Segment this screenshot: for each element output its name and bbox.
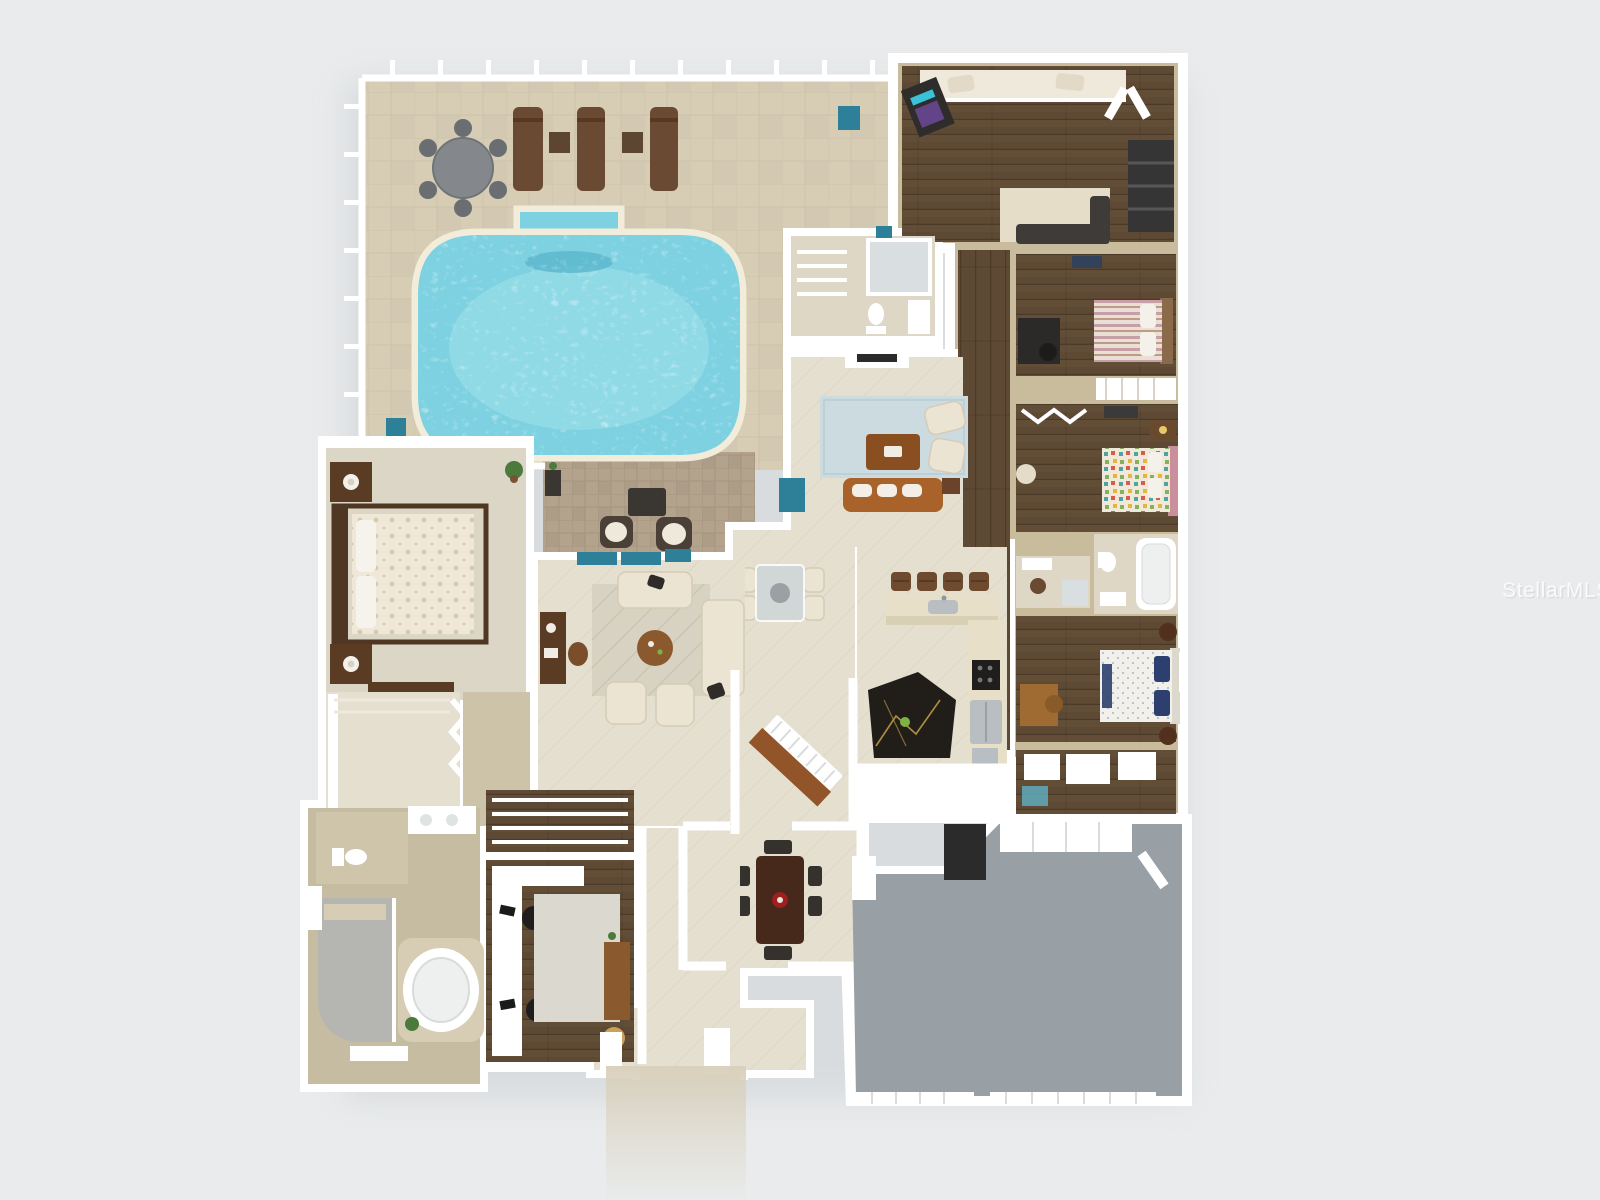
wall-art xyxy=(1072,256,1102,268)
outdoor-table xyxy=(628,488,666,516)
side-table xyxy=(549,132,570,153)
cabinet xyxy=(1024,754,1060,780)
side-table xyxy=(622,132,643,153)
armchair xyxy=(606,682,646,724)
nightstand xyxy=(1159,727,1177,745)
pool xyxy=(418,212,740,455)
nightstand xyxy=(330,462,372,502)
pool-bath-laundry xyxy=(791,226,935,336)
patio-table xyxy=(433,138,493,198)
cabinet xyxy=(604,942,630,1020)
wicker-chair xyxy=(600,516,633,548)
armchair xyxy=(927,437,966,474)
tray xyxy=(884,446,902,457)
wall-art xyxy=(1104,406,1138,418)
glass-door xyxy=(1022,786,1048,806)
water-closet xyxy=(316,812,408,884)
nightstand xyxy=(1159,623,1177,641)
pillow xyxy=(356,520,376,572)
bedroom-4 xyxy=(1016,616,1180,745)
utility-mat xyxy=(944,824,986,880)
window-glass xyxy=(876,226,892,238)
vanity xyxy=(1022,558,1052,570)
bed-quilt xyxy=(1102,446,1178,516)
garage-doors xyxy=(856,1092,1156,1104)
nightstand xyxy=(330,644,372,684)
master-bedroom xyxy=(326,448,526,700)
toilet xyxy=(1030,578,1046,594)
makeup-vanity xyxy=(306,886,322,930)
range xyxy=(972,660,1000,690)
vanity xyxy=(908,300,930,334)
shower xyxy=(868,240,930,294)
soaking-tub xyxy=(398,938,484,1042)
accent-chair xyxy=(1016,464,1036,484)
bed-white xyxy=(1100,648,1180,724)
kitchen xyxy=(857,547,1007,768)
lanai-console xyxy=(545,470,561,496)
sofa-caramel xyxy=(843,478,943,512)
bed-striped xyxy=(1094,298,1173,364)
hall-bath xyxy=(1094,534,1178,614)
vanity xyxy=(1100,592,1126,606)
cabinet xyxy=(1118,752,1156,780)
desk-chair xyxy=(1045,695,1063,713)
sink xyxy=(928,600,958,614)
living-room xyxy=(538,560,745,826)
desk-chair xyxy=(1039,343,1057,361)
floor-plan-render: StellarMLS StellarMLS xyxy=(0,0,1600,1200)
pool-lounge-chairs xyxy=(513,107,678,191)
office xyxy=(486,790,634,1062)
mosaic-accent xyxy=(838,106,860,130)
toilet xyxy=(345,849,367,865)
storage-nook xyxy=(852,856,876,900)
bedroom-3 xyxy=(1016,404,1178,532)
sofa xyxy=(1016,224,1100,244)
shower-bench xyxy=(324,904,386,920)
master-closet xyxy=(326,692,466,822)
watermark: StellarMLS xyxy=(1502,579,1600,602)
shower xyxy=(1062,580,1088,606)
master-bed xyxy=(332,506,486,642)
plant xyxy=(405,1017,419,1031)
family-room xyxy=(791,350,968,547)
fruit-bowl xyxy=(900,717,910,727)
double-vanity xyxy=(408,806,476,834)
dinette-chair xyxy=(804,568,824,592)
side-table xyxy=(942,478,960,494)
front-walkway xyxy=(606,1066,746,1200)
mud-hall xyxy=(1016,750,1176,814)
chaise xyxy=(1090,196,1110,244)
bonus-room xyxy=(901,66,1174,244)
floor-plan-svg: StellarMLS StellarMLS xyxy=(0,0,1600,1200)
cabinet xyxy=(1066,754,1110,784)
tv xyxy=(857,354,897,362)
coffee-table xyxy=(637,630,673,666)
bath-mat xyxy=(350,1046,408,1061)
kitchen-counter-right xyxy=(968,620,1006,768)
master-bath xyxy=(306,806,484,1084)
wicker-chair xyxy=(656,517,692,551)
pillow xyxy=(1055,73,1085,92)
toilet xyxy=(868,303,884,325)
lamp xyxy=(1159,426,1167,434)
dishwasher xyxy=(972,748,998,764)
ensuite-bath xyxy=(1016,556,1090,608)
desk-chair xyxy=(568,642,588,666)
armchair xyxy=(656,684,694,726)
closet-shelves xyxy=(1096,378,1176,400)
dinette-foyer xyxy=(733,530,855,832)
table-pedestal xyxy=(770,583,790,603)
pillow xyxy=(356,576,376,628)
walk-in-shower xyxy=(318,898,394,1042)
dinette-chair xyxy=(804,596,824,620)
